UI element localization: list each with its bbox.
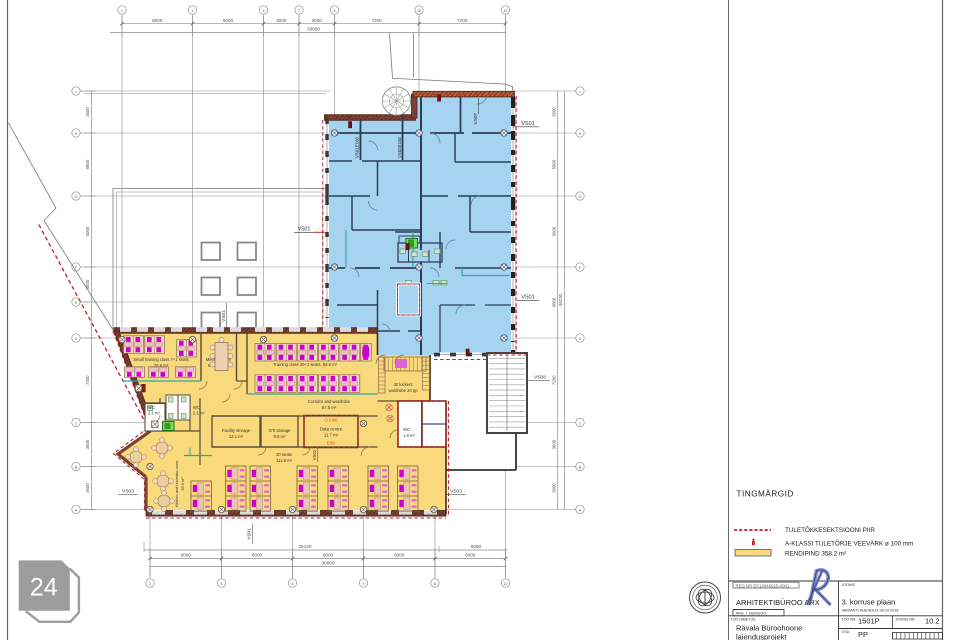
svg-text:4: 4 <box>221 582 223 586</box>
svg-text:WC: WC <box>403 427 410 432</box>
svg-text:6000: 6000 <box>152 18 163 23</box>
svg-text:6000: 6000 <box>223 18 234 23</box>
svg-text:EI60: EI60 <box>327 441 336 446</box>
svg-text:REG NR EP10046925-0001: REG NR EP10046925-0001 <box>736 583 790 588</box>
svg-text:VS03E160: VS03E160 <box>397 136 402 158</box>
svg-text:40 lockers: 40 lockers <box>393 382 412 387</box>
svg-text:A-KLASSI TULETÕRJE VEEVÄRK ø 1: A-KLASSI TULETÕRJE VEEVÄRK ø 100 mm <box>785 538 913 547</box>
svg-text:6000: 6000 <box>85 226 90 236</box>
svg-text:11: 11 <box>433 582 437 586</box>
svg-text:1501P: 1501P <box>858 617 880 626</box>
svg-text:9.0 m²: 9.0 m² <box>274 434 286 439</box>
svg-text:C: C <box>579 421 582 425</box>
svg-text:12: 12 <box>504 9 508 13</box>
svg-text:JOONIS: JOONIS <box>842 583 856 587</box>
svg-text:TULETÕKKESEKTSIOONI PIIR: TULETÕKKESEKTSIOONI PIIR <box>785 525 875 534</box>
svg-text:G: G <box>579 195 582 199</box>
svg-text:3600: 3600 <box>551 483 556 493</box>
svg-text:TÖÖ NIMETUS: TÖÖ NIMETUS <box>731 617 757 621</box>
svg-text:24: 24 <box>30 574 58 602</box>
svg-text:laiendusprojekt: laiendusprojekt <box>736 633 787 640</box>
svg-text:G: G <box>75 195 78 199</box>
svg-text:I: I <box>76 90 77 94</box>
svg-text:VS01: VS01 <box>521 295 534 301</box>
svg-text:6000: 6000 <box>181 553 192 558</box>
svg-text:6080: 6080 <box>471 544 482 549</box>
svg-text:Training class 20+1 seats, 59.: Training class 20+1 seats, 59.6 m² <box>273 362 338 367</box>
svg-text:7200: 7200 <box>551 375 556 385</box>
svg-text:Kitchen and recreatio room: Kitchen and recreatio room <box>174 461 179 508</box>
svg-text:36230: 36230 <box>558 293 563 306</box>
svg-text:GTi storage: GTi storage <box>269 428 291 433</box>
svg-text:WC: WC <box>193 405 200 410</box>
svg-text:PP: PP <box>858 630 868 639</box>
svg-text:6000: 6000 <box>465 553 476 558</box>
svg-text:7: 7 <box>298 9 300 13</box>
svg-text:10.2: 10.2 <box>925 617 940 626</box>
svg-text:111.8 m²: 111.8 m² <box>276 458 293 463</box>
svg-text:7200: 7200 <box>372 18 383 23</box>
svg-text:VS01: VS01 <box>521 121 534 127</box>
svg-text:12.1 m²: 12.1 m² <box>229 434 244 439</box>
svg-text:VARIANTLAHENDUS 28.03.2018: VARIANTLAHENDUS 28.03.2018 <box>842 609 899 613</box>
svg-text:VS03: VS03 <box>450 489 462 495</box>
svg-text:O EI60: O EI60 <box>324 418 338 423</box>
svg-text:WC: WC <box>148 405 155 410</box>
svg-text:3000: 3000 <box>276 18 287 23</box>
svg-text:11.7 m²: 11.7 m² <box>324 433 339 438</box>
svg-text:25120: 25120 <box>299 544 312 549</box>
svg-text:3600: 3600 <box>85 439 90 449</box>
svg-text:5800: 5800 <box>551 159 556 169</box>
svg-text:VS01E160: VS01E160 <box>355 136 360 158</box>
svg-text:RENDIPIND 358.2 m²: RENDIPIND 358.2 m² <box>785 550 846 557</box>
svg-text:6: 6 <box>292 582 294 586</box>
svg-text:VS08: VS08 <box>534 375 546 381</box>
svg-text:3600: 3600 <box>85 483 90 493</box>
svg-text:ARH. I. HEINSOO: ARH. I. HEINSOO <box>736 611 767 615</box>
svg-text:VS02: VS02 <box>312 449 317 460</box>
svg-text:VS01: VS01 <box>247 528 253 540</box>
svg-text:33800: 33800 <box>307 27 320 32</box>
svg-text:6000: 6000 <box>551 226 556 236</box>
svg-text:wardrobe 20 pp: wardrobe 20 pp <box>388 388 418 393</box>
svg-text:67.5 m²: 67.5 m² <box>322 405 337 410</box>
svg-text:OSA: OSA <box>842 630 850 634</box>
svg-text:3000: 3000 <box>312 18 323 23</box>
svg-text:2.1 m²: 2.1 m² <box>148 411 160 416</box>
svg-text:C: C <box>75 421 78 425</box>
svg-text:H: H <box>579 132 582 136</box>
svg-text:3: 3 <box>192 9 194 13</box>
svg-text:VS03: VS03 <box>122 489 134 495</box>
svg-text:Rävala Büroohoone: Rävala Büroohoone <box>736 624 802 633</box>
svg-text:3000: 3000 <box>85 279 90 289</box>
svg-text:D: D <box>579 337 582 341</box>
svg-text:Facility storage: Facility storage <box>222 428 251 433</box>
svg-text:TÖÖ NR.: TÖÖ NR. <box>842 617 857 621</box>
svg-text:VS01: VS01 <box>221 310 227 322</box>
svg-text:10: 10 <box>417 9 421 13</box>
svg-text:3600: 3600 <box>551 439 556 449</box>
svg-text:3. korruse plaan: 3. korruse plaan <box>842 598 896 607</box>
svg-text:35.9 m²: 35.9 m² <box>180 477 185 491</box>
svg-text:6000: 6000 <box>252 553 263 558</box>
svg-text:1.9 m²: 1.9 m² <box>403 433 415 438</box>
svg-text:3500: 3500 <box>551 107 556 117</box>
svg-text:6000: 6000 <box>551 297 556 307</box>
svg-text:D: D <box>75 337 78 341</box>
svg-text:Small training class 7+1 seats: Small training class 7+1 seats <box>133 357 189 362</box>
svg-text:5: 5 <box>263 9 265 13</box>
svg-text:7200: 7200 <box>457 18 468 23</box>
svg-text:20 seats: 20 seats <box>276 452 292 457</box>
svg-text:Data centre: Data centre <box>320 427 343 432</box>
svg-text:6000: 6000 <box>323 553 334 558</box>
svg-text:8: 8 <box>334 9 336 13</box>
svg-text:7200: 7200 <box>85 375 90 385</box>
svg-text:JOONIS NR.: JOONIS NR. <box>895 617 916 621</box>
svg-text:2.1 m²: 2.1 m² <box>193 411 205 416</box>
svg-text:H: H <box>75 132 78 136</box>
svg-text:5800: 5800 <box>85 159 90 169</box>
svg-text:I: I <box>580 90 581 94</box>
svg-text:VS01: VS01 <box>298 227 311 233</box>
svg-text:9: 9 <box>363 582 365 586</box>
svg-text:6000: 6000 <box>394 553 405 558</box>
svg-text:12: 12 <box>504 582 508 586</box>
svg-text:2: 2 <box>149 582 151 586</box>
svg-text:3500: 3500 <box>85 107 90 117</box>
svg-text:TINGMÄRGID: TINGMÄRGID <box>737 489 794 499</box>
svg-text:30000: 30000 <box>322 561 335 566</box>
svg-text:VS07: VS07 <box>473 113 478 125</box>
svg-text:Corridor and wardrobe: Corridor and wardrobe <box>308 399 351 404</box>
svg-text:1: 1 <box>121 9 123 13</box>
